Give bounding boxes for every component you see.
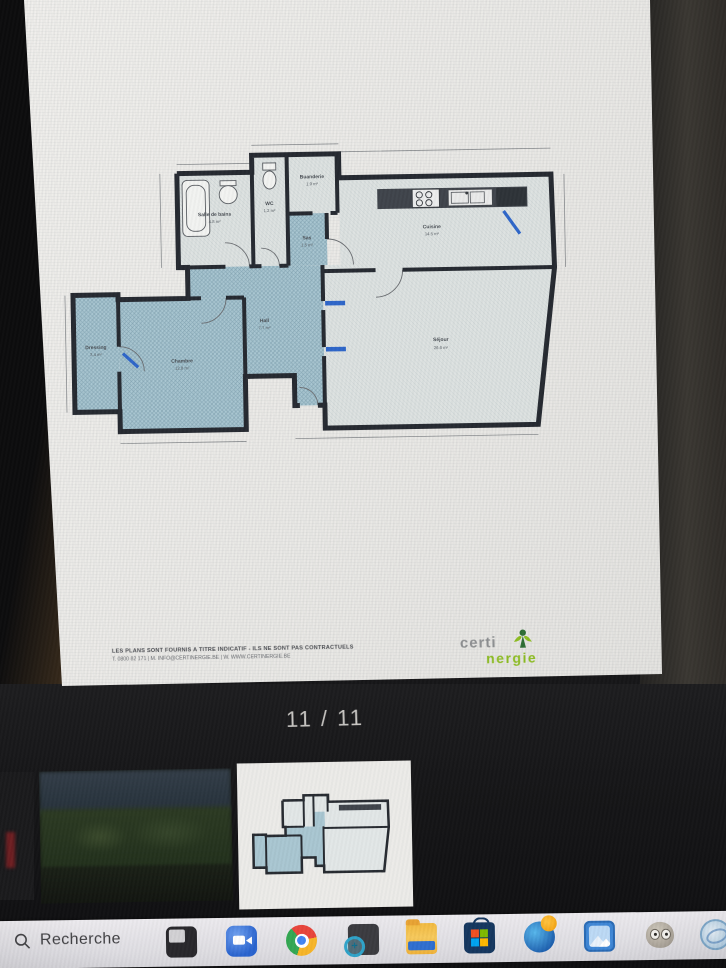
plan-disclaimer: LES PLANS SONT FOURNIS A TITRE INDICATIF… bbox=[112, 643, 422, 662]
kitchen-appliance bbox=[496, 188, 526, 207]
stove-icon bbox=[412, 189, 439, 207]
page-indicator: 11 / 11 bbox=[235, 704, 416, 735]
svg-text:12.8 m²: 12.8 m² bbox=[175, 365, 190, 370]
thumbnail-trees bbox=[40, 806, 233, 869]
thumbnail-ground bbox=[41, 864, 234, 903]
gimp-icon[interactable] bbox=[646, 922, 674, 948]
partial-app-icon[interactable] bbox=[700, 919, 726, 950]
thumbnail-photo-aerial[interactable] bbox=[39, 768, 233, 903]
svg-text:Chambre: Chambre bbox=[171, 358, 193, 364]
chrome-icon[interactable] bbox=[286, 925, 317, 956]
sink-icon bbox=[448, 189, 492, 206]
screen-photo: Salle de bains 4.8 m² WC 1.2 m² Buanderi… bbox=[0, 0, 726, 968]
photos-inner bbox=[589, 926, 610, 947]
bathtub-icon bbox=[182, 180, 210, 236]
logo-text-certi: certi bbox=[460, 634, 497, 652]
thumbnail-red-detail bbox=[6, 832, 15, 868]
edge-orb-icon[interactable] bbox=[524, 921, 555, 952]
svg-text:26.6 m²: 26.6 m² bbox=[434, 345, 449, 350]
svg-text:Séjour: Séjour bbox=[433, 337, 449, 343]
washbasin-icon bbox=[219, 181, 237, 204]
svg-text:7.7 m²: 7.7 m² bbox=[259, 325, 272, 330]
logo-person-icon bbox=[510, 627, 536, 651]
svg-text:14.5 m²: 14.5 m² bbox=[425, 231, 440, 236]
logo-text-nergie: nergie bbox=[486, 649, 537, 666]
toilet-icon bbox=[263, 163, 276, 189]
taskbar-search[interactable]: Recherche bbox=[14, 930, 121, 949]
thumbnail-plan-mini bbox=[248, 788, 402, 883]
taskbar: Recherche + bbox=[0, 911, 726, 968]
file-explorer-icon[interactable] bbox=[406, 923, 437, 954]
thumbnail-photo-partial[interactable] bbox=[0, 772, 34, 900]
folder-front bbox=[408, 941, 435, 950]
svg-text:1.5 m²: 1.5 m² bbox=[301, 242, 314, 247]
certinergie-logo: certi nergie bbox=[452, 625, 563, 673]
svg-text:Dressing: Dressing bbox=[85, 345, 107, 351]
dark-window-icon[interactable] bbox=[166, 926, 197, 957]
svg-text:3.4 m²: 3.4 m² bbox=[90, 352, 103, 357]
mountain-glyph-2 bbox=[597, 938, 610, 946]
svg-text:1.9 m²: 1.9 m² bbox=[306, 181, 319, 186]
chat-icon[interactable] bbox=[226, 925, 257, 956]
photos-icon[interactable] bbox=[584, 920, 615, 951]
floor-plan-drawing: Salle de bains 4.8 m² WC 1.2 m² Buanderi… bbox=[55, 133, 600, 458]
scribble-glyph bbox=[704, 926, 726, 947]
svg-text:1.2 m²: 1.2 m² bbox=[264, 208, 277, 213]
gimp-eye-right bbox=[661, 929, 671, 940]
video-camera-glyph bbox=[233, 936, 245, 945]
document-page: Salle de bains 4.8 m² WC 1.2 m² Buanderi… bbox=[0, 0, 726, 692]
zoom-tool-icon[interactable]: + bbox=[348, 924, 379, 955]
search-icon bbox=[14, 932, 31, 949]
gimp-eye-left bbox=[650, 929, 660, 940]
svg-text:Salle de bains: Salle de bains bbox=[198, 212, 232, 219]
windows-logo bbox=[471, 929, 488, 946]
svg-text:WC: WC bbox=[265, 201, 274, 207]
folder-tab bbox=[406, 919, 420, 925]
svg-text:Cuisine: Cuisine bbox=[423, 224, 441, 230]
bag-handle bbox=[473, 917, 490, 928]
search-label: Recherche bbox=[40, 930, 121, 949]
chrome-center bbox=[297, 936, 306, 945]
magnifier-plus-glyph: + bbox=[344, 936, 365, 957]
svg-text:Sas: Sas bbox=[302, 235, 311, 241]
svg-text:4.8 m²: 4.8 m² bbox=[209, 219, 222, 224]
window-pane bbox=[169, 929, 185, 942]
orange-dot bbox=[541, 915, 557, 931]
svg-text:Hall: Hall bbox=[260, 318, 270, 324]
thumbnail-floor-plan-selected[interactable] bbox=[237, 760, 414, 909]
floor-plan-svg: Salle de bains 4.8 m² WC 1.2 m² Buanderi… bbox=[55, 133, 600, 458]
svg-text:Buanderie: Buanderie bbox=[300, 174, 325, 180]
microsoft-store-icon[interactable] bbox=[464, 922, 495, 953]
video-lens-glyph bbox=[246, 937, 252, 945]
